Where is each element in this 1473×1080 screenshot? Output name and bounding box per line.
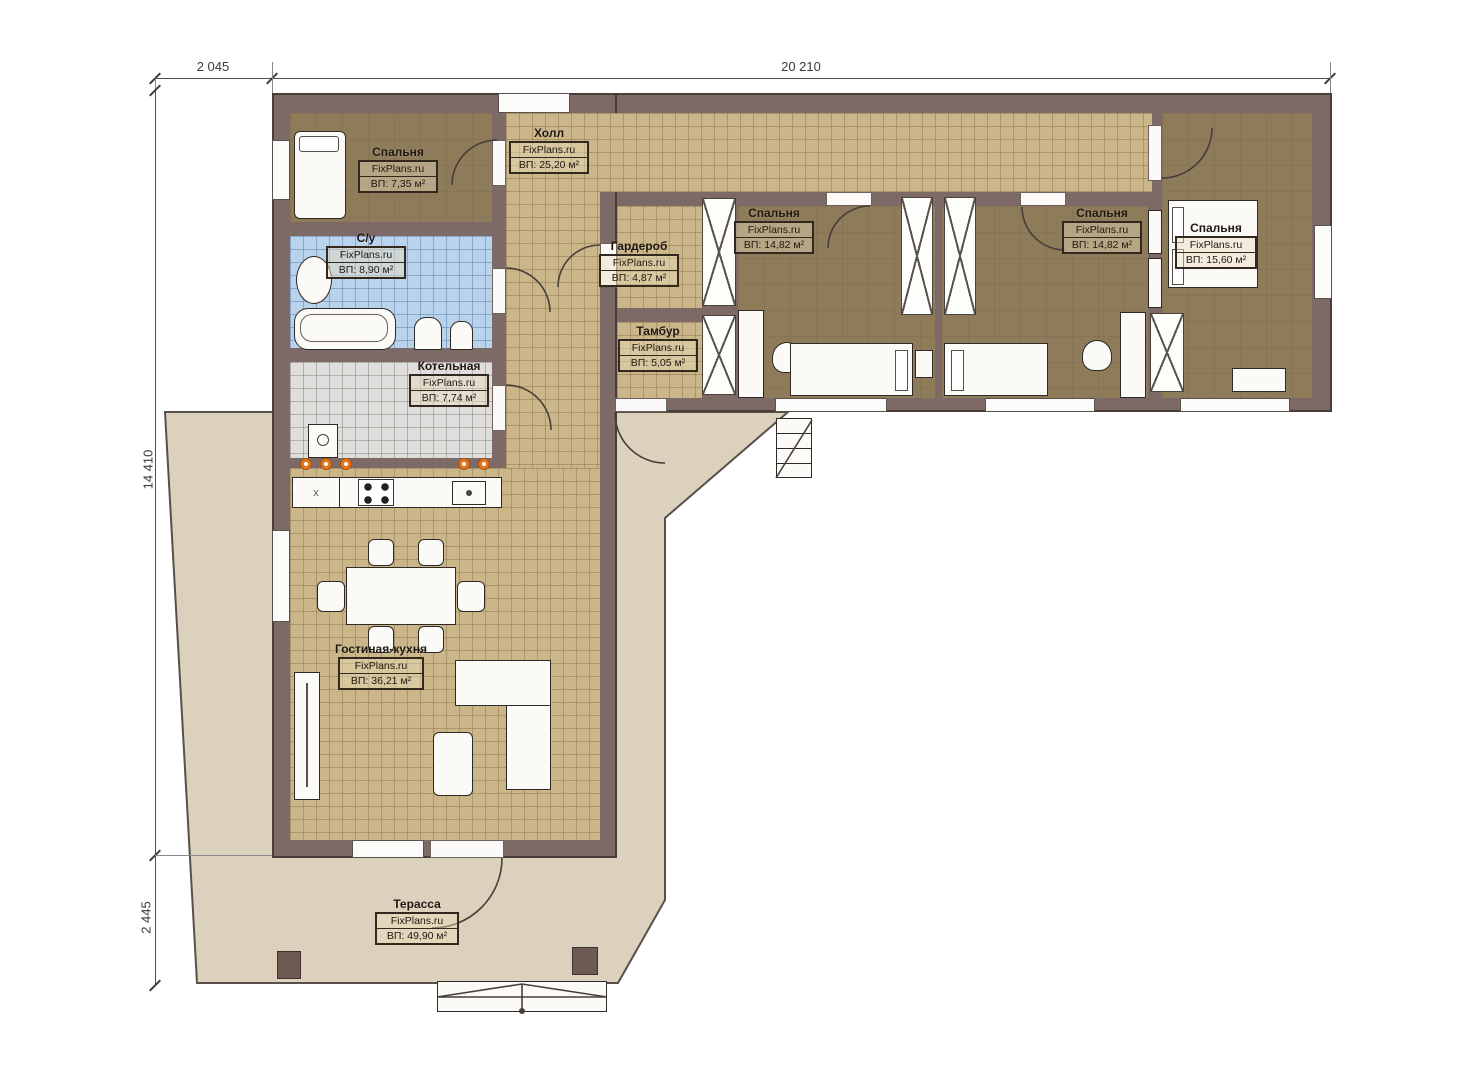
room-area: ВП: 5,05 м² xyxy=(620,355,696,370)
pillow xyxy=(895,350,908,391)
room-name: Холл xyxy=(509,126,589,140)
room-label-boiler-room: Котельная FixPlans.ru ВП: 7,74 м² xyxy=(409,359,489,407)
door-opening-bedroom-far-right xyxy=(1148,125,1162,181)
room-area: ВП: 25,20 м² xyxy=(511,157,587,172)
bed-bedroom-middle xyxy=(790,343,913,396)
window-right-bedroom xyxy=(1314,225,1332,299)
room-area: ВП: 14,82 м² xyxy=(736,237,812,252)
window-south-bedroom-far-right xyxy=(1180,398,1290,412)
pillow xyxy=(299,136,339,152)
room-brand: FixPlans.ru xyxy=(511,143,587,157)
dining-chair xyxy=(317,581,345,612)
room-brand: FixPlans.ru xyxy=(340,659,422,673)
closet-bedroom-middle xyxy=(901,197,933,315)
door-opening-entry xyxy=(615,398,667,412)
floor-hall-strip xyxy=(506,113,1152,192)
room-name: Гардероб xyxy=(599,239,679,253)
sofa-back-section xyxy=(455,660,551,706)
door-opening-bedroom-middle xyxy=(826,192,872,206)
spotlight-icon xyxy=(300,458,312,470)
room-brand: FixPlans.ru xyxy=(601,256,677,270)
room-area: ВП: 36,21 м² xyxy=(340,673,422,688)
pillow xyxy=(951,350,964,391)
dimension-line-left xyxy=(155,90,156,985)
cabinet-mark: x xyxy=(313,487,319,499)
sink-drain xyxy=(466,490,472,496)
door-opening-bedroom-top-left xyxy=(492,140,506,186)
door-opening-boiler xyxy=(492,385,506,431)
tv-line xyxy=(306,683,308,787)
desk-bedroom-middle xyxy=(738,310,764,398)
coffee-table xyxy=(433,732,473,796)
dimension-top-right: 20 210 xyxy=(756,59,846,74)
room-label-living-kitchen: Гостиная-кухня FixPlans.ru ВП: 36,21 м² xyxy=(326,642,436,690)
door-opening-bedroom-right xyxy=(1020,192,1066,206)
door-opening-terrace xyxy=(430,840,504,858)
dimension-left-lower: 2 445 xyxy=(139,878,154,958)
room-name: Спальня xyxy=(358,145,438,159)
room-label-wardrobe: Гардероб FixPlans.ru ВП: 4,87 м² xyxy=(599,239,679,287)
terrace-steps xyxy=(437,981,607,1012)
room-label-bedroom-far-right: Спальня FixPlans.ru ВП: 15,60 м² xyxy=(1175,221,1257,269)
kitchen-cabinet: x xyxy=(292,477,340,508)
toilet xyxy=(414,317,442,350)
room-label-bedroom-right: Спальня FixPlans.ru ВП: 14,82 м² xyxy=(1062,206,1142,254)
closet-bedroom-right xyxy=(944,197,976,315)
kitchen-sink xyxy=(452,481,486,505)
spotlight-icon xyxy=(340,458,352,470)
room-label-bathroom: С/у FixPlans.ru ВП: 8,90 м² xyxy=(326,231,406,279)
room-area: ВП: 7,74 м² xyxy=(411,390,487,405)
room-brand: FixPlans.ru xyxy=(1064,223,1140,237)
room-area: ВП: 15,60 м² xyxy=(1177,252,1255,267)
terrace-post xyxy=(572,947,598,975)
window-south-bedroom-right xyxy=(985,398,1095,412)
room-area: ВП: 8,90 м² xyxy=(328,262,404,277)
floor-plan: x xyxy=(0,0,1473,1080)
bed-top-left xyxy=(294,131,346,219)
dimension-left-upper: 14 410 xyxy=(141,425,156,515)
shelf-unit xyxy=(1148,258,1162,308)
stove xyxy=(358,479,394,506)
room-name: Спальня xyxy=(734,206,814,220)
room-brand: FixPlans.ru xyxy=(328,248,404,262)
room-name: Котельная xyxy=(409,359,489,373)
dim-extension xyxy=(272,62,273,93)
room-brand: FixPlans.ru xyxy=(377,914,457,928)
dimension-top-left: 2 045 xyxy=(170,59,256,74)
spotlight-icon xyxy=(478,458,490,470)
window-south-bedroom-middle xyxy=(775,398,887,412)
room-name: Спальня xyxy=(1062,206,1142,220)
dim-extension xyxy=(155,855,272,856)
terrace-post xyxy=(277,951,301,979)
door-opening-bathroom xyxy=(492,268,506,314)
room-name: Тамбур xyxy=(618,324,698,338)
room-brand: FixPlans.ru xyxy=(411,376,487,390)
room-name: Спальня xyxy=(1175,221,1257,235)
room-area: ВП: 4,87 м² xyxy=(601,270,677,285)
room-label-bedroom-top-left: Спальня FixPlans.ru ВП: 7,35 м² xyxy=(358,145,438,193)
bidet xyxy=(450,321,473,350)
room-area: ВП: 7,35 м² xyxy=(360,176,436,191)
dim-extension xyxy=(1330,62,1331,93)
window-left-living xyxy=(272,530,290,622)
closet-wardrobe-upper xyxy=(702,198,736,306)
dining-table xyxy=(346,567,456,625)
room-name: С/у xyxy=(326,231,406,245)
room-name: Терасса xyxy=(375,897,459,911)
room-brand: FixPlans.ru xyxy=(736,223,812,237)
tv-stand xyxy=(294,672,320,800)
spotlight-icon xyxy=(458,458,470,470)
closet-bedroom-far-right xyxy=(1150,313,1184,392)
boiler-unit xyxy=(308,424,338,458)
bathtub-inner xyxy=(300,314,388,342)
closet-wardrobe-lower xyxy=(702,315,736,395)
window-left-bedroom xyxy=(272,140,290,200)
room-brand: FixPlans.ru xyxy=(620,341,696,355)
bedside-table xyxy=(1232,368,1286,392)
sofa-side-section xyxy=(506,705,551,790)
room-area: ВП: 14,82 м² xyxy=(1064,237,1140,252)
entry-steps xyxy=(776,418,812,478)
bathtub xyxy=(294,308,396,350)
dimension-line-top xyxy=(155,78,1330,79)
room-label-bedroom-middle: Спальня FixPlans.ru ВП: 14,82 м² xyxy=(734,206,814,254)
window-top-wall xyxy=(498,93,570,113)
room-label-vestibule: Тамбур FixPlans.ru ВП: 5,05 м² xyxy=(618,324,698,372)
dining-chair xyxy=(418,539,444,566)
room-label-terrace: Терасса FixPlans.ru ВП: 49,90 м² xyxy=(375,897,459,945)
window-south-living xyxy=(352,840,424,858)
dining-chair xyxy=(368,539,394,566)
dining-chair xyxy=(457,581,485,612)
desk-chair xyxy=(1082,340,1112,371)
bed-bedroom-right xyxy=(944,343,1048,396)
desk-bedroom-right xyxy=(1120,312,1146,398)
room-brand: FixPlans.ru xyxy=(1177,238,1255,252)
spotlight-icon xyxy=(320,458,332,470)
room-name: Гостиная-кухня xyxy=(326,642,436,656)
nightstand xyxy=(915,350,933,378)
room-brand: FixPlans.ru xyxy=(360,162,436,176)
boiler-dial xyxy=(317,434,329,446)
room-area: ВП: 49,90 м² xyxy=(377,928,457,943)
shelf-unit xyxy=(1148,210,1162,254)
room-label-hall: Холл FixPlans.ru ВП: 25,20 м² xyxy=(509,126,589,174)
